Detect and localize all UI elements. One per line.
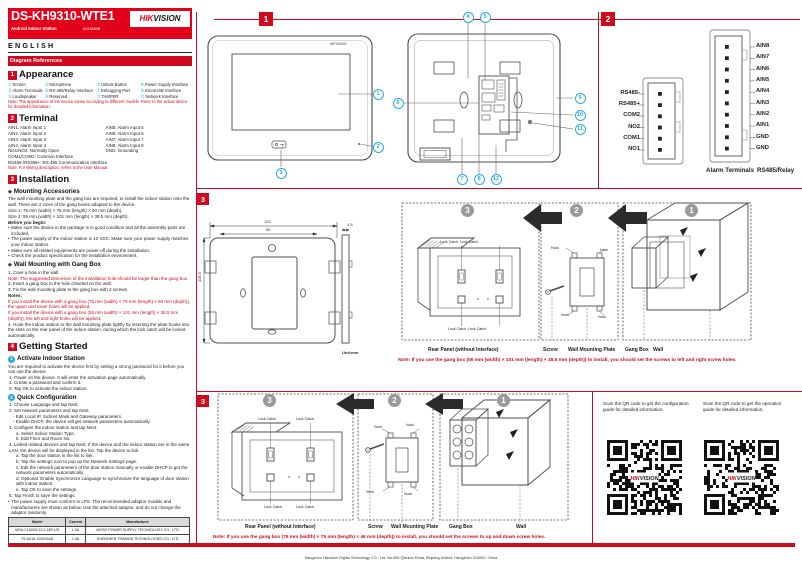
config-guide-note-text: Refer to Video Intercom Network Indoor S… [13, 545, 192, 546]
quick-substep: e. Tap OK to save the settings. [16, 487, 192, 492]
appearance-item-label: Power Supply Interface [145, 82, 188, 87]
quick-step: 3. Configure the indoor station and tap … [9, 425, 192, 430]
appearance-item: ①Screen [8, 82, 45, 87]
quick-substep: - Edit Local IP, Subnet Mask and Gateway… [13, 414, 192, 419]
quick-step: 2. Set network parameters and tap Next. [9, 408, 192, 413]
hook-label: Hook [598, 315, 606, 319]
caption-screw: Screw [368, 524, 383, 530]
dim-label-inner: 92 [266, 227, 270, 232]
terminal-label-com2: COM2 [608, 112, 640, 118]
section-installation-title: Installation [19, 174, 69, 186]
mounting-accessories-title: Mounting Accessories [14, 188, 80, 196]
appearance-item: ②Microphone [45, 82, 97, 87]
terminal-label-ain4: AIN4 [756, 88, 769, 94]
config-guide-note: ◆ Refer to Video Intercom Network Indoor… [8, 545, 192, 546]
terminal-label-gnd-1: GND [756, 134, 769, 140]
callout-1: 1 [373, 89, 384, 100]
table-row: MSA-C1500IC12.0-18P-US 1.5A MOSO POWER S… [9, 526, 190, 535]
cell-manufacturer: MOSO POWER SUPPLY TECHNOLOGY CO., LTD [85, 526, 189, 535]
device-diagrams-line-art [196, 0, 802, 188]
terminal-label-ain3: AIN3 [756, 100, 769, 106]
terminal-label-com1: COM1 [608, 135, 640, 141]
terminal-label-no2: NO2 [608, 124, 640, 130]
callout-11: 11 [575, 124, 586, 135]
appearance-item-label: Unlock Button [101, 82, 127, 87]
install-row2-line-art [210, 392, 592, 542]
install-step-2: 2. Insert a gang box to the hole chisele… [8, 281, 192, 286]
callout-leader-lines [281, 23, 573, 174]
rs485-terminal-block-drawing [643, 78, 683, 164]
terminal-list: AIN1: Alarm Input 1AIN5: Alarm Input 5 A… [8, 125, 192, 154]
quick-substep: d. Optional: Enable Synchronize Language… [16, 476, 192, 487]
appearance-item: ④Power Supply Interface [140, 82, 192, 87]
diagram-badge-3-bottom: 3 [197, 395, 209, 407]
activate-step: 2. Create a password and confirm it. [9, 380, 192, 385]
lock-catch-label: Lock Catch [468, 327, 486, 331]
section-3-badge: 3 [8, 175, 17, 184]
cell-manufacturer: SHENZHEN TRANSIN TECHNOLOGIES CO., LTD [85, 535, 189, 544]
appearance-item: ⑥RS-485/Relay Interface [45, 88, 97, 93]
activate-step: 3. Tap OK to activate the indoor station… [9, 386, 192, 391]
qr-code-operation: HIKVISION [704, 440, 779, 515]
callout-2: 2 [373, 142, 384, 153]
install-note-1: Note: The suggested dimension of the ins… [8, 276, 192, 281]
terminal-note: Note: For Wiring description, refers to … [8, 166, 192, 171]
rear-panel-iso-drawing [232, 423, 342, 503]
callout-4: 4 [463, 12, 474, 23]
doc-code: UD15580B [83, 27, 101, 31]
quick-step: 1. Choose Language and tap Next. [9, 402, 192, 407]
cell-current: 1.5A [66, 535, 86, 544]
lock-catch-label: Lock Catch [460, 240, 478, 244]
section-terminal-title: Terminal [19, 113, 58, 125]
callout-number-icon: ⑧ [140, 88, 144, 93]
appearance-item-label: Microphone [49, 82, 71, 87]
terminal-label-no1: NO1 [608, 146, 640, 152]
language-label: ENGLISH [8, 42, 192, 53]
product-subtitle: Android Indoor Station [11, 26, 57, 31]
callout-number-icon: ④ [140, 82, 144, 87]
callout-10: 10 [575, 110, 586, 121]
wall-and-gangbox-drawing [632, 203, 748, 340]
section-getting-started: 4 Getting Started [8, 341, 192, 353]
caption-rear-panel: Rear Panel (without Interface) [245, 524, 316, 530]
section-4-badge: 4 [8, 343, 17, 352]
caption-wall-mounting-plate: Wall Mounting Plate [568, 347, 615, 353]
lock-catch-label: Lock Catch [448, 327, 466, 331]
diagram-references-bar: Diagram References [8, 56, 192, 66]
quick-substep: b. Tap the settings icon to pop up the N… [16, 459, 192, 464]
terminal-label-ain7: AIN7 [756, 54, 769, 60]
section-terminal: 2 Terminal [8, 113, 192, 125]
caption-rear-panel: Rear Panel (without Interface) [428, 347, 499, 353]
hook-label: Hook [561, 313, 569, 317]
lock-catch-labels-top: Lock CatchLock Catch [440, 240, 478, 244]
callout-5: 5 [480, 12, 491, 23]
wall-mounting-title: Wall Mounting with Gang Box [14, 261, 101, 269]
plate-and-screw-drawing [546, 248, 605, 340]
install-notes-label: Notes: [8, 293, 192, 298]
column-header-current: Current [66, 518, 86, 527]
wall-mounting-heading: ◆ Wall Mounting with Gang Box [8, 261, 192, 269]
terminal-label-ain1: AIN1 [756, 122, 769, 128]
wall-and-gangbox-drawing [450, 400, 550, 522]
callout-number-icon: ① [8, 82, 12, 87]
hook-label: Hook [374, 425, 382, 429]
install-step-1: 1. Cave a hole in the wall. [8, 270, 192, 275]
install-step-4: 4. Hook the indoor station to the wall m… [8, 322, 192, 338]
section-1-badge: 1 [8, 71, 17, 80]
section-appearance: 1 Appearance [8, 69, 192, 81]
dim-label-width: 122 [264, 219, 271, 224]
terminal-label-ain5: AIN5 [756, 77, 769, 83]
dim-label-thickness: 1.5 [347, 222, 353, 227]
step-circle-1: 1 [497, 394, 510, 407]
appearance-item-label: Alarm Terminals [13, 88, 43, 93]
logo-hik: HIK [140, 14, 154, 24]
gangbox-size-1: Size 1: 75 mm (width) × 75 mm (length) ×… [8, 208, 192, 213]
section-2-badge: 2 [8, 114, 17, 123]
activate-intro: You are required to activate the device … [8, 364, 192, 375]
appearance-item: ⑧microUSB Interface [140, 88, 192, 93]
before-item: •Make sure all related equipments are po… [8, 248, 192, 253]
callout-number-icon: ⑦ [96, 88, 100, 93]
plate-and-screw-drawing [366, 429, 419, 522]
divider-bottom-right-vertical [592, 391, 593, 543]
mounting-accessories-heading: ◆ Mounting Accessories [8, 188, 192, 196]
quick-substep: b. Edit Floor and Room No. [16, 436, 192, 441]
gangbox-size-2: Size 2: 55 mm (width) × 101 mm (length) … [8, 214, 192, 219]
appearance-item-label: RS-485/Relay Interface [49, 88, 93, 93]
quick-step: 4. Linked related devices and tap Next. … [9, 442, 192, 453]
appearance-item-label: Debugging Port [101, 88, 130, 93]
activate-title: Activate Indoor Station [17, 355, 85, 363]
callout-6: 6 [393, 98, 404, 109]
appearance-item: ③Unlock Button [96, 82, 140, 87]
adaptor-table-header-row: Model Current Manufacturer [9, 518, 190, 527]
before-item-text: Make sure the device in the package is i… [11, 225, 192, 236]
callout-number-icon: ⑤ [8, 88, 12, 93]
appearance-item: ⑤Alarm Terminals [8, 88, 45, 93]
bullet-icon: • [8, 499, 10, 515]
quick-substep: c. Edit the network parameters of the do… [16, 465, 192, 476]
section-getting-started-title: Getting Started [19, 341, 88, 353]
lock-catch-label: Lock Catch [296, 417, 314, 421]
bullet-icon: • [8, 248, 10, 253]
terminal-label-gnd-2: GND [756, 145, 769, 151]
appearance-item: ⑦Debugging Port [96, 88, 140, 93]
terminal-label-rs485-plus: RS485+ [608, 101, 640, 107]
before-item: •Make sure the device in the package is … [8, 225, 192, 236]
svg-text:HIKVISION: HIKVISION [727, 476, 756, 482]
bullet-icon: • [8, 253, 10, 258]
lock-catch-label: Lock Catch [440, 240, 458, 244]
step-circle-1: 1 [685, 204, 698, 217]
sub-step-2-icon: 2 [8, 394, 15, 401]
lock-catch-labels-bottom: Lock CatchLock Catch [448, 327, 486, 331]
terminal-label-ain6: AIN6 [756, 66, 769, 72]
callout-7: 7 [457, 174, 468, 185]
adaptor-table: Model Current Manufacturer MSA-C1500IC12… [8, 517, 190, 544]
hook-label: Hook [551, 246, 559, 250]
alarm-terminal-block-drawing [710, 30, 750, 162]
direction-arrows [523, 204, 647, 232]
mounting-intro: The wall mounting plate and the gang box… [8, 196, 192, 207]
qr-config-text: Scan the QR code to get the configuratio… [603, 401, 693, 413]
callout-number-icon: ③ [96, 82, 100, 87]
qr-code-configuration: HIKVISION [607, 440, 682, 515]
caption-wall-mounting-plate: Wall Mounting Plate [391, 524, 438, 530]
install-row1-line-art [398, 196, 798, 346]
diamond-icon: ◆ [8, 189, 12, 195]
quick-start-guide-page: 1 2 3 3 DS-KH9310-WTE1 Android Indoor St… [0, 0, 802, 570]
rear-panel-drawing [408, 34, 560, 162]
lock-catch-label: Lock Catch [296, 505, 314, 509]
front-panel-logo: HIKVISION [330, 42, 346, 46]
activate-heading: 1 Activate Indoor Station [8, 355, 192, 363]
caption-wall: Wall [653, 347, 663, 353]
bullet-icon: • [8, 236, 10, 247]
lock-catch-label: Lock Catch [258, 417, 276, 421]
column-header-manufacturer: Manufacturer [85, 518, 189, 527]
quick-substep: - Enable DHCP, the device will get netwo… [13, 419, 192, 424]
section-installation: 3 Installation [8, 174, 192, 186]
before-item: •Check the product specification for the… [8, 253, 192, 258]
before-item-text: Check the product specification for the … [11, 253, 137, 258]
bullet-icon: • [8, 225, 10, 236]
callout-12: 12 [491, 174, 502, 185]
quick-substep: a. Tap the door station in the list to l… [16, 453, 192, 458]
section-appearance-title: Appearance [19, 69, 73, 81]
before-item-text: The power supply of the indoor station i… [11, 236, 192, 247]
left-text-column: DS-KH9310-WTE1 Android Indoor Station UD… [8, 8, 192, 546]
cell-current: 1.5A [66, 526, 86, 535]
power-supply-note-text: The power supply must conform to LPS. Th… [11, 499, 192, 515]
caption-gang-box: Gang Box [449, 524, 473, 530]
before-item: •The power supply of the indoor station … [8, 236, 192, 247]
install-row2-note: Note: If you use the gang box (75 mm (wi… [213, 535, 545, 540]
appearance-item-label: Screen [13, 82, 26, 87]
hook-label: Hook [406, 423, 414, 427]
mounting-plate-dimension-drawing [196, 188, 406, 391]
lock-catch-label: Lock Catch [264, 505, 282, 509]
rear-panel-iso-drawing [418, 238, 520, 326]
power-supply-note: • The power supply must conform to LPS. … [8, 499, 192, 515]
caption-alarm-terminals: Alarm Terminals [706, 167, 754, 174]
quick-config-heading: 2 Quick Configuration [8, 394, 192, 402]
document-header: DS-KH9310-WTE1 Android Indoor Station UD… [8, 8, 192, 39]
step-circle-2: 2 [388, 394, 401, 407]
install-note-b: If you install the device with a gang bo… [8, 310, 192, 321]
callout-9: 9 [575, 93, 586, 104]
terminal-label-ain2: AIN2 [756, 111, 769, 117]
caption-screw: Screw [543, 347, 558, 353]
flame-icon: ◆ [8, 545, 11, 546]
install-step-3: 3. Fix the wall mounting plate to the ga… [8, 287, 192, 292]
step-circle-3: 3 [263, 394, 276, 407]
before-you-begin-label: Before you begin: [8, 220, 192, 225]
dim-label-height: 105.5 [197, 272, 202, 282]
cell-model: MSA-C1500IC12.0-18P-US [9, 526, 66, 535]
appearance-note: Note: The appearance of the device varie… [8, 100, 192, 110]
diamond-icon: ◆ [8, 262, 12, 268]
logo-vision: VISION [153, 14, 180, 24]
quick-config-title: Quick Configuration [17, 394, 76, 402]
qr-operation-text: Scan the QR code to get the operation gu… [703, 401, 793, 413]
before-item-text: Make sure all related equipments are pow… [11, 248, 150, 253]
terminal-label-ain8: AIN8 [756, 43, 769, 49]
front-panel-drawing [208, 36, 372, 160]
column-header-model: Model [9, 518, 66, 527]
appearance-list: ①Screen ②Microphone ③Unlock Button ④Powe… [8, 82, 192, 99]
caption-gang-box: Gang Box [625, 347, 649, 353]
quick-step: 5. Tap Finish to save the settings. [9, 493, 192, 498]
step-circle-3: 3 [461, 204, 474, 217]
hikvision-logo: HIKVISION [130, 11, 190, 27]
appearance-item-label: microUSB Interface [145, 88, 181, 93]
caption-wall: Wall [516, 524, 526, 530]
hook-label: Hook [404, 492, 412, 496]
cell-model: TS-A018-120015AD [9, 535, 66, 544]
hook-label: Hook [366, 490, 374, 494]
svg-text:HIKVISION: HIKVISION [630, 476, 659, 482]
terminal-captions: Alarm Terminals RS485/Relay [706, 167, 794, 174]
activate-step: 1. Power on the device. It will enter th… [9, 375, 192, 380]
caption-rs485-relay: RS485/Relay [757, 167, 794, 174]
table-row: TS-A018-120015AD 1.5A SHENZHEN TRANSIN T… [9, 535, 190, 544]
terminal-label-rs485-minus: RS485- [608, 90, 640, 96]
dim-unit-label: Unit:mm [342, 350, 358, 355]
install-row1-note: Note: If you use the gang box (55 mm (wi… [398, 358, 737, 363]
step-circle-2: 2 [570, 204, 583, 217]
callout-8: 8 [474, 174, 485, 185]
install-note-a: If you install the device with a gang bo… [8, 299, 192, 310]
footer-address: Hangzhou Hikvision Digital Technology CO… [0, 556, 802, 560]
hook-label: Hook [600, 248, 608, 252]
terminal-item: GND: Grounding [106, 148, 192, 154]
sub-step-1-icon: 1 [8, 356, 15, 363]
quick-substep: a. Select Indoor Station Type. [16, 431, 192, 436]
callout-3: 3 [276, 168, 287, 179]
